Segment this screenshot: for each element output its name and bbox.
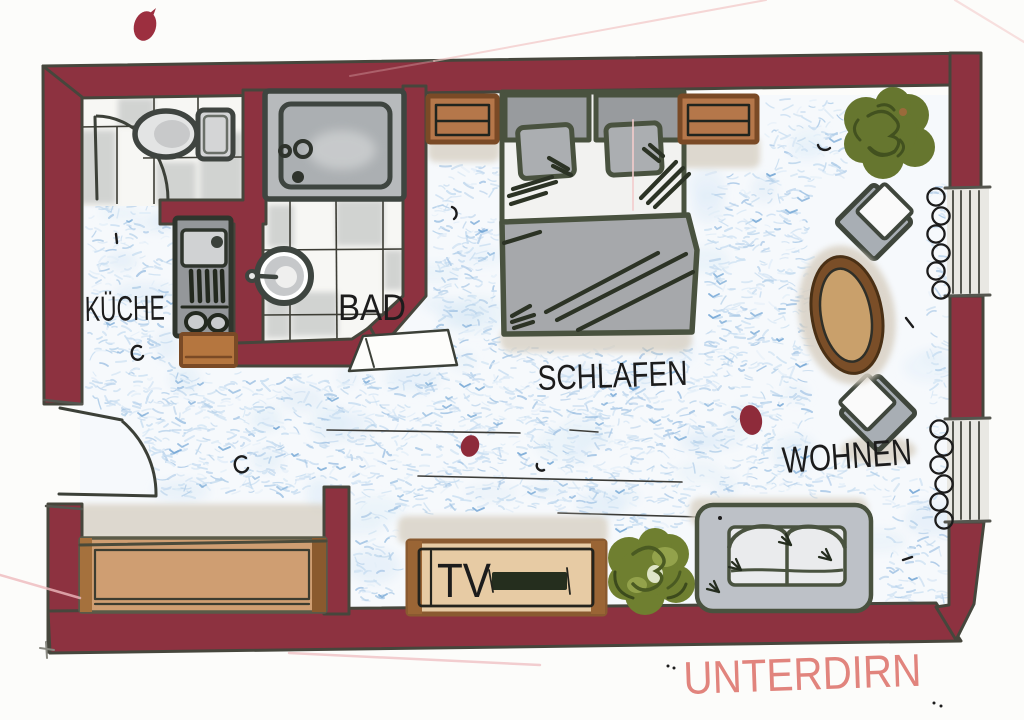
- svg-text:BAD: BAD: [338, 287, 406, 328]
- svg-text:SCHLAFEN: SCHLAFEN: [537, 354, 688, 398]
- svg-text:KÜCHE: KÜCHE: [84, 289, 165, 329]
- svg-text:UNTERDIRN: UNTERDIRN: [683, 644, 923, 704]
- svg-text:TV: TV: [437, 555, 491, 608]
